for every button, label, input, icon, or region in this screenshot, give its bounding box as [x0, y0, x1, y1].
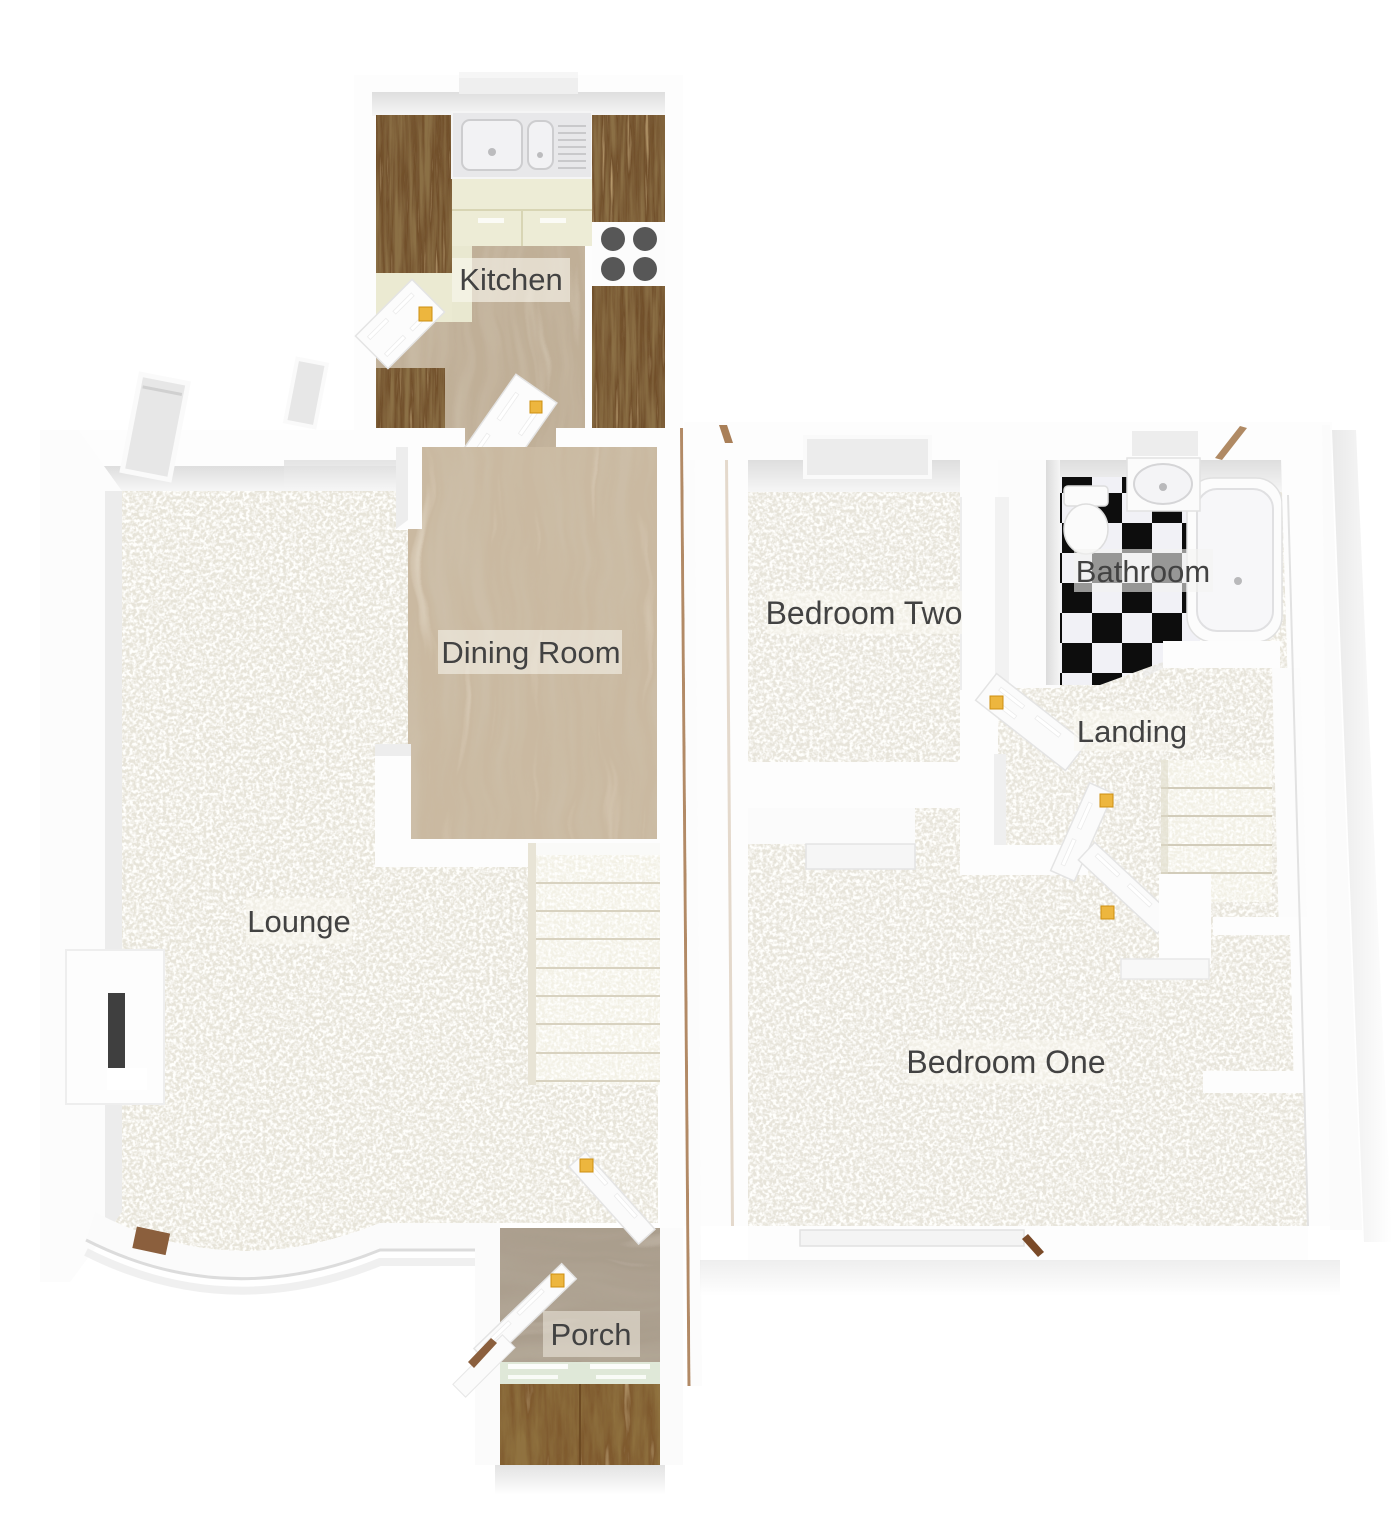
svg-text:Bedroom One: Bedroom One [906, 1044, 1105, 1080]
svg-text:Bedroom Two: Bedroom Two [766, 595, 963, 631]
svg-text:Bathroom: Bathroom [1076, 554, 1210, 589]
svg-text:Porch: Porch [551, 1317, 632, 1352]
svg-text:Dining Room: Dining Room [441, 635, 620, 670]
svg-text:Landing: Landing [1077, 714, 1187, 749]
svg-text:Kitchen: Kitchen [459, 262, 562, 297]
svg-text:Lounge: Lounge [247, 904, 350, 939]
